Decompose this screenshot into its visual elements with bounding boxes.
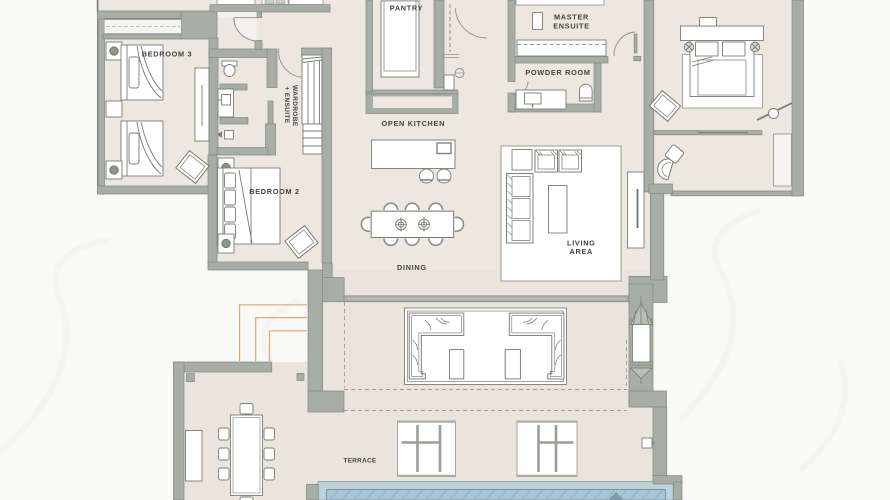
svg-text:ENSUITE: ENSUITE bbox=[553, 22, 590, 31]
svg-text:PANTRY: PANTRY bbox=[390, 4, 423, 13]
svg-text:BEDROOM 3: BEDROOM 3 bbox=[142, 50, 193, 59]
svg-text:AREA: AREA bbox=[570, 247, 594, 256]
svg-text:TERRACE: TERRACE bbox=[344, 457, 377, 464]
svg-text:DINING: DINING bbox=[397, 263, 427, 272]
svg-text:WARDROBE: WARDROBE bbox=[291, 85, 298, 127]
svg-text:POWDER ROOM: POWDER ROOM bbox=[525, 68, 590, 77]
svg-text:BEDROOM 2: BEDROOM 2 bbox=[249, 187, 300, 196]
svg-text:MASTER: MASTER bbox=[554, 13, 589, 22]
svg-text:OPEN KITCHEN: OPEN KITCHEN bbox=[382, 119, 446, 128]
svg-text:+ ENSUITE: + ENSUITE bbox=[283, 87, 290, 124]
